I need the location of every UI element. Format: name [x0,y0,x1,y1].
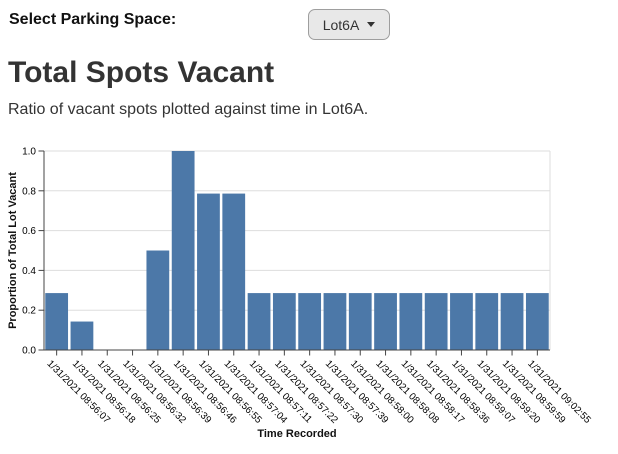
y-axis-title: Proportion of Total Lot Vacant [7,172,19,329]
parking-space-dropdown-value: Lot6A [323,17,360,33]
bar [146,251,169,351]
bar [172,151,195,350]
select-parking-space-label: Select Parking Space: [9,11,176,29]
x-axis-title: Time Recorded [257,428,336,440]
bar [45,293,68,350]
bar [450,293,473,350]
bar [71,322,94,350]
page-title: Total Spots Vacant [8,56,274,90]
bar [298,293,321,350]
bar [374,293,397,350]
y-tick-label: 1.0 [22,147,36,158]
bar [197,194,220,350]
bar [248,293,271,350]
page-subtitle: Ratio of vacant spots plotted against ti… [8,101,368,119]
bar [475,293,498,350]
y-tick-label: 0.2 [22,306,36,317]
bar [399,293,422,350]
vacancy-bar-chart-svg: 0.00.20.40.60.81.01/31/2021 08:56:071/31… [0,138,618,449]
bar [273,293,296,350]
bar [425,293,448,350]
y-tick-label: 0.0 [22,346,36,357]
bar [349,293,372,350]
vacancy-chart: 0.00.20.40.60.81.01/31/2021 08:56:071/31… [0,138,618,449]
bar [222,194,245,350]
y-tick-label: 0.6 [22,226,36,237]
y-tick-label: 0.4 [22,266,36,277]
caret-down-icon [367,22,375,27]
parking-space-dropdown[interactable]: Lot6A [308,9,390,40]
bar [526,293,549,350]
y-tick-label: 0.8 [22,186,36,197]
bar [501,293,524,350]
bar [324,293,347,350]
